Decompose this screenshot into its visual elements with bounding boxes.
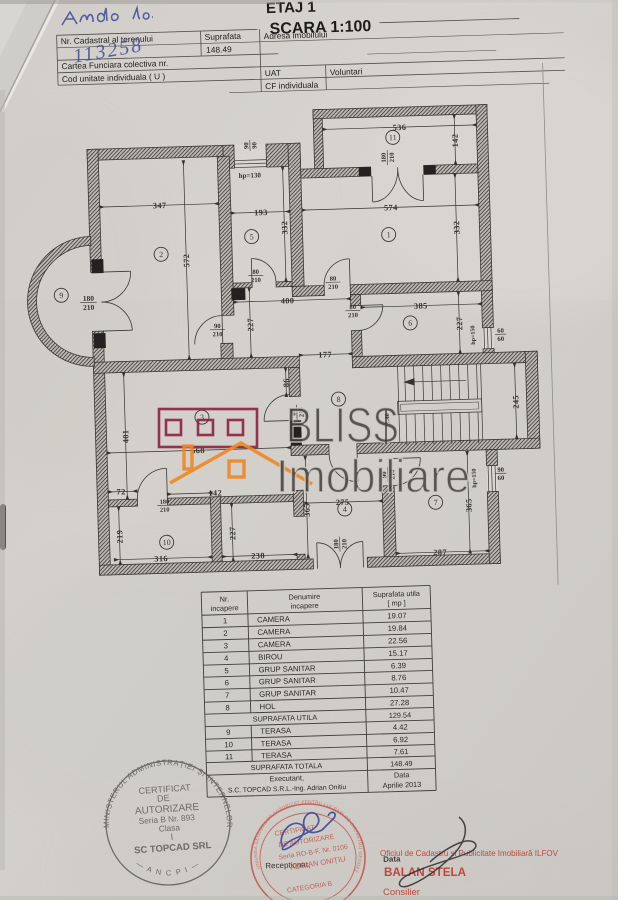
svg-text:5: 5 [250, 232, 254, 241]
svg-text:316: 316 [154, 554, 168, 563]
svg-text:hp=130: hp=130 [239, 171, 262, 180]
svg-text:210: 210 [251, 277, 262, 284]
svg-text:15.17: 15.17 [388, 648, 408, 658]
svg-text:6.92: 6.92 [393, 735, 408, 744]
svg-text:Nr.: Nr. [220, 594, 230, 603]
svg-text:7.61: 7.61 [393, 747, 408, 756]
svg-text:5: 5 [224, 666, 229, 675]
svg-text:385: 385 [414, 301, 428, 310]
svg-text:227: 227 [246, 318, 255, 332]
svg-text:8: 8 [225, 703, 230, 712]
svg-text:60: 60 [498, 475, 506, 482]
svg-text:400: 400 [281, 296, 295, 305]
svg-text:7: 7 [225, 691, 230, 700]
svg-text:HOL: HOL [259, 702, 276, 711]
svg-text:10: 10 [163, 538, 171, 547]
svg-text:Imobiliare: Imobiliare [276, 450, 470, 502]
svg-text:210: 210 [83, 303, 95, 312]
svg-text:TERASA: TERASA [260, 726, 292, 736]
svg-text:DE: DE [157, 793, 170, 804]
svg-text:129.54: 129.54 [389, 710, 412, 720]
svg-text:10.47: 10.47 [389, 685, 409, 695]
svg-text:227: 227 [228, 526, 237, 540]
svg-text:BLISS: BLISS [286, 399, 399, 453]
svg-text:GRUP SANITAR: GRUP SANITAR [258, 664, 316, 675]
svg-text:3: 3 [224, 641, 229, 650]
svg-text:1: 1 [223, 616, 228, 625]
svg-text:90: 90 [243, 142, 250, 150]
svg-text:219: 219 [115, 530, 124, 544]
svg-text:574: 574 [384, 203, 398, 212]
svg-text:10: 10 [224, 740, 233, 749]
svg-text:8.76: 8.76 [391, 673, 406, 682]
svg-text:80: 80 [330, 275, 338, 282]
svg-text:90: 90 [214, 323, 222, 330]
svg-text:Data: Data [394, 770, 411, 779]
svg-text:CAMERA: CAMERA [258, 639, 292, 649]
svg-text:142: 142 [451, 134, 460, 148]
svg-text:287: 287 [433, 548, 447, 557]
svg-text:180: 180 [381, 152, 388, 163]
svg-text:180: 180 [333, 538, 340, 549]
svg-text:BIROU: BIROU [258, 652, 283, 662]
svg-text:80: 80 [252, 269, 260, 276]
svg-text:incapere: incapere [290, 601, 318, 611]
svg-text:TERASA: TERASA [261, 738, 293, 748]
svg-text:Aprilie 2013: Aprilie 2013 [383, 780, 422, 790]
svg-text:572: 572 [182, 254, 191, 268]
svg-text:210: 210 [212, 331, 223, 338]
svg-text:UAT: UAT [265, 68, 281, 78]
svg-text:142: 142 [208, 488, 222, 497]
svg-text:11: 11 [389, 133, 397, 142]
svg-text:177: 177 [318, 350, 332, 359]
svg-text:CAMERA: CAMERA [257, 627, 291, 637]
svg-text:6.39: 6.39 [391, 661, 406, 670]
svg-text:SUPRAFATA UTILA: SUPRAFATA UTILA [253, 713, 318, 724]
svg-text:22.56: 22.56 [388, 636, 408, 646]
svg-text:9: 9 [226, 728, 231, 737]
svg-text:332: 332 [452, 221, 461, 235]
svg-text:GRUP SANITAR: GRUP SANITAR [259, 688, 317, 699]
svg-text:148.49: 148.49 [390, 759, 413, 769]
svg-text:148.49: 148.49 [206, 44, 232, 55]
svg-text:11: 11 [225, 752, 233, 761]
svg-text:227: 227 [455, 317, 464, 331]
svg-text:6: 6 [408, 319, 412, 328]
svg-text:Suprafata: Suprafata [205, 31, 242, 42]
svg-text:80: 80 [349, 304, 357, 311]
svg-text:[ mp ]: [ mp ] [387, 598, 406, 608]
svg-text:hp=150: hp=150 [470, 325, 477, 344]
svg-text:245: 245 [511, 395, 520, 409]
svg-text:TERASA: TERASA [261, 750, 293, 760]
svg-text:332: 332 [280, 221, 289, 235]
svg-text:19.07: 19.07 [387, 611, 407, 621]
svg-text:Adresa imobilului: Adresa imobilului [264, 29, 328, 41]
svg-text:90: 90 [497, 467, 505, 474]
svg-text:210: 210 [160, 507, 170, 514]
svg-text:238: 238 [251, 551, 265, 560]
svg-text:210: 210 [328, 284, 339, 291]
svg-text:4: 4 [343, 505, 347, 514]
svg-text:347: 347 [153, 201, 167, 210]
svg-text:193: 193 [254, 208, 268, 217]
svg-text:180: 180 [160, 499, 170, 506]
svg-text:401: 401 [121, 429, 130, 443]
svg-text:GRUP SANITAR: GRUP SANITAR [259, 676, 317, 687]
svg-text:90: 90 [251, 141, 258, 149]
svg-text:210: 210 [348, 312, 359, 319]
svg-text:2: 2 [223, 629, 228, 638]
svg-text:Voluntari: Voluntari [330, 66, 363, 77]
svg-text:86: 86 [282, 378, 291, 387]
svg-text:4.42: 4.42 [393, 722, 408, 731]
svg-text:6: 6 [225, 678, 230, 687]
svg-text:incapere: incapere [211, 603, 239, 613]
svg-text:180: 180 [83, 294, 95, 303]
svg-text:1: 1 [387, 230, 391, 239]
svg-text:365: 365 [302, 503, 311, 517]
svg-text:Executant,: Executant, [269, 773, 304, 783]
svg-text:CF individuala: CF individuala [265, 80, 319, 92]
svg-text:60: 60 [497, 336, 505, 343]
svg-text:19.84: 19.84 [388, 623, 408, 633]
svg-text:2: 2 [159, 250, 163, 259]
svg-text:60: 60 [497, 328, 505, 335]
svg-text:210: 210 [341, 538, 348, 549]
svg-text:210: 210 [389, 152, 396, 163]
svg-text:72: 72 [116, 487, 125, 496]
svg-text:CAMERA: CAMERA [257, 614, 291, 624]
svg-text:9: 9 [59, 291, 63, 300]
svg-text:hp=150: hp=150 [472, 468, 479, 487]
svg-text:27.28: 27.28 [390, 698, 410, 708]
